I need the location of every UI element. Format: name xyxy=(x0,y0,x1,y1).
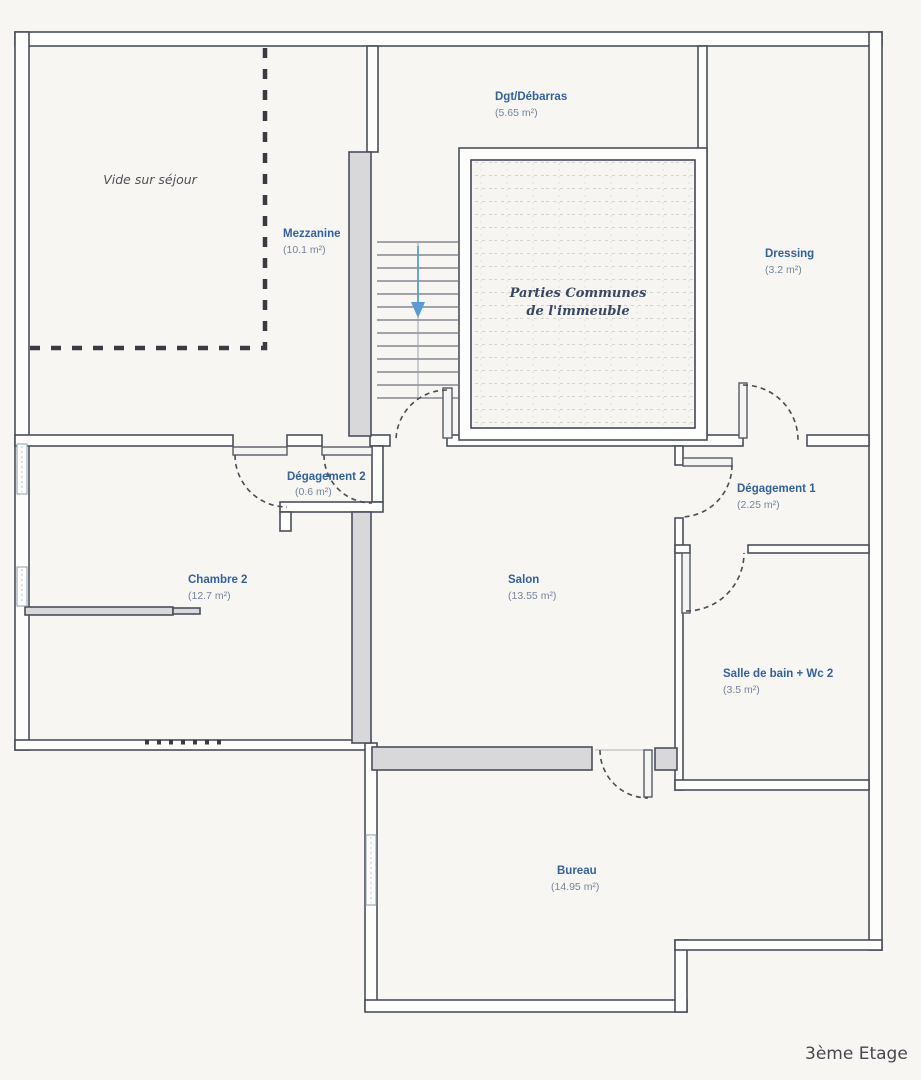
svg-text:(3.5 m²): (3.5 m²) xyxy=(723,684,760,696)
wall-post xyxy=(655,748,677,770)
wall-bureau-bottom-left xyxy=(365,1000,687,1012)
windows xyxy=(17,444,376,905)
svg-text:(14.95 m²): (14.95 m²) xyxy=(551,881,599,893)
wall-degagement2-stub xyxy=(280,512,291,531)
wall-right xyxy=(869,32,882,950)
svg-text:Parties Communes: Parties Communes xyxy=(509,286,647,301)
svg-text:(13.55 m²): (13.55 m²) xyxy=(508,590,556,602)
room-label-chambre2: Chambre 2 (12.7 m²) xyxy=(188,574,247,602)
wall-top xyxy=(15,32,882,46)
svg-text:Dgt/Débarras: Dgt/Débarras xyxy=(495,91,567,103)
svg-text:Mezzanine: Mezzanine xyxy=(283,228,341,240)
wall-sdb-top xyxy=(748,545,869,553)
room-label-dressing: Dressing (3.2 m²) xyxy=(765,248,814,276)
wall-mezzanine-divider xyxy=(367,46,378,152)
svg-text:(0.6 m²): (0.6 m²) xyxy=(295,486,332,498)
staircase xyxy=(377,242,459,398)
wall-corridor-a xyxy=(15,435,233,446)
svg-text:Chambre 2: Chambre 2 xyxy=(188,574,247,586)
void-annotation-label: Vide sur séjour xyxy=(103,172,197,187)
room-label-degagement1: Dégagement 1 (2.25 m²) xyxy=(737,483,816,511)
door-degagement1 xyxy=(683,458,732,517)
wall-sdb-top-stub xyxy=(675,545,690,553)
void-boundary-dashed xyxy=(27,48,265,348)
floor-title: 3ème Etage xyxy=(805,1044,908,1064)
svg-text:(10.1 m²): (10.1 m²) xyxy=(283,244,326,256)
room-label-mezzanine: Mezzanine (10.1 m²) xyxy=(283,228,341,256)
svg-text:(2.25 m²): (2.25 m²) xyxy=(737,499,780,511)
wall-mezzanine-guard-gray xyxy=(349,152,371,436)
room-label-bureau: Bureau (14.95 m²) xyxy=(551,865,599,893)
room-label-salon: Salon (13.55 m²) xyxy=(508,574,556,602)
svg-text:Bureau: Bureau xyxy=(557,865,597,877)
wall-chambre2-partition-tip xyxy=(173,608,200,614)
svg-text:(3.2 m²): (3.2 m²) xyxy=(765,264,802,276)
door-staircase xyxy=(396,388,452,441)
svg-text:Salle de bain + Wc 2: Salle de bain + Wc 2 xyxy=(723,668,833,680)
svg-text:Dressing: Dressing xyxy=(765,248,814,260)
wall-degagement2-bottom xyxy=(280,502,383,512)
floor-plan-drawing: Vide sur séjour Dgt/Débarras (5.65 m²) M… xyxy=(0,0,921,1080)
room-label-dgt-debarras: Dgt/Débarras (5.65 m²) xyxy=(495,91,567,119)
wall-left xyxy=(15,32,29,750)
door-bureau xyxy=(595,750,652,798)
floor-plan-page: Vide sur séjour Dgt/Débarras (5.65 m²) M… xyxy=(0,0,921,1080)
door-dressing xyxy=(739,383,798,440)
door-mezzanine-to-chambre2 xyxy=(233,447,287,507)
svg-text:(5.65 m²): (5.65 m²) xyxy=(495,107,538,119)
room-label-salle-de-bain: Salle de bain + Wc 2 (3.5 m²) xyxy=(723,668,833,696)
svg-text:Dégagement 1: Dégagement 1 xyxy=(737,483,816,495)
stairs-down-arrow-icon xyxy=(411,302,425,318)
wall-salon-sdb-upper xyxy=(675,446,683,465)
svg-text:Salon: Salon xyxy=(508,574,539,586)
svg-text:de l'immeuble: de l'immeuble xyxy=(526,304,629,319)
wall-salon-west-gray xyxy=(352,512,371,743)
wall-corridor-b xyxy=(287,435,322,446)
wall-sdb-bottom xyxy=(675,780,869,790)
wall-corridor-e xyxy=(807,435,869,446)
wall-salon-bureau-gray xyxy=(372,747,592,770)
wall-corridor-c xyxy=(370,435,390,446)
wall-chambre2-partition xyxy=(25,607,173,615)
svg-text:(12.7 m²): (12.7 m²) xyxy=(188,590,231,602)
svg-text:Dégagement 2: Dégagement 2 xyxy=(287,471,366,483)
wall-degagement2-east xyxy=(372,446,383,502)
wall-bottom-right xyxy=(675,940,882,950)
door-salle-de-bain xyxy=(682,553,744,613)
window-bureau-left xyxy=(366,835,376,905)
room-label-degagement2: Dégagement 2 (0.6 m²) xyxy=(287,471,366,498)
